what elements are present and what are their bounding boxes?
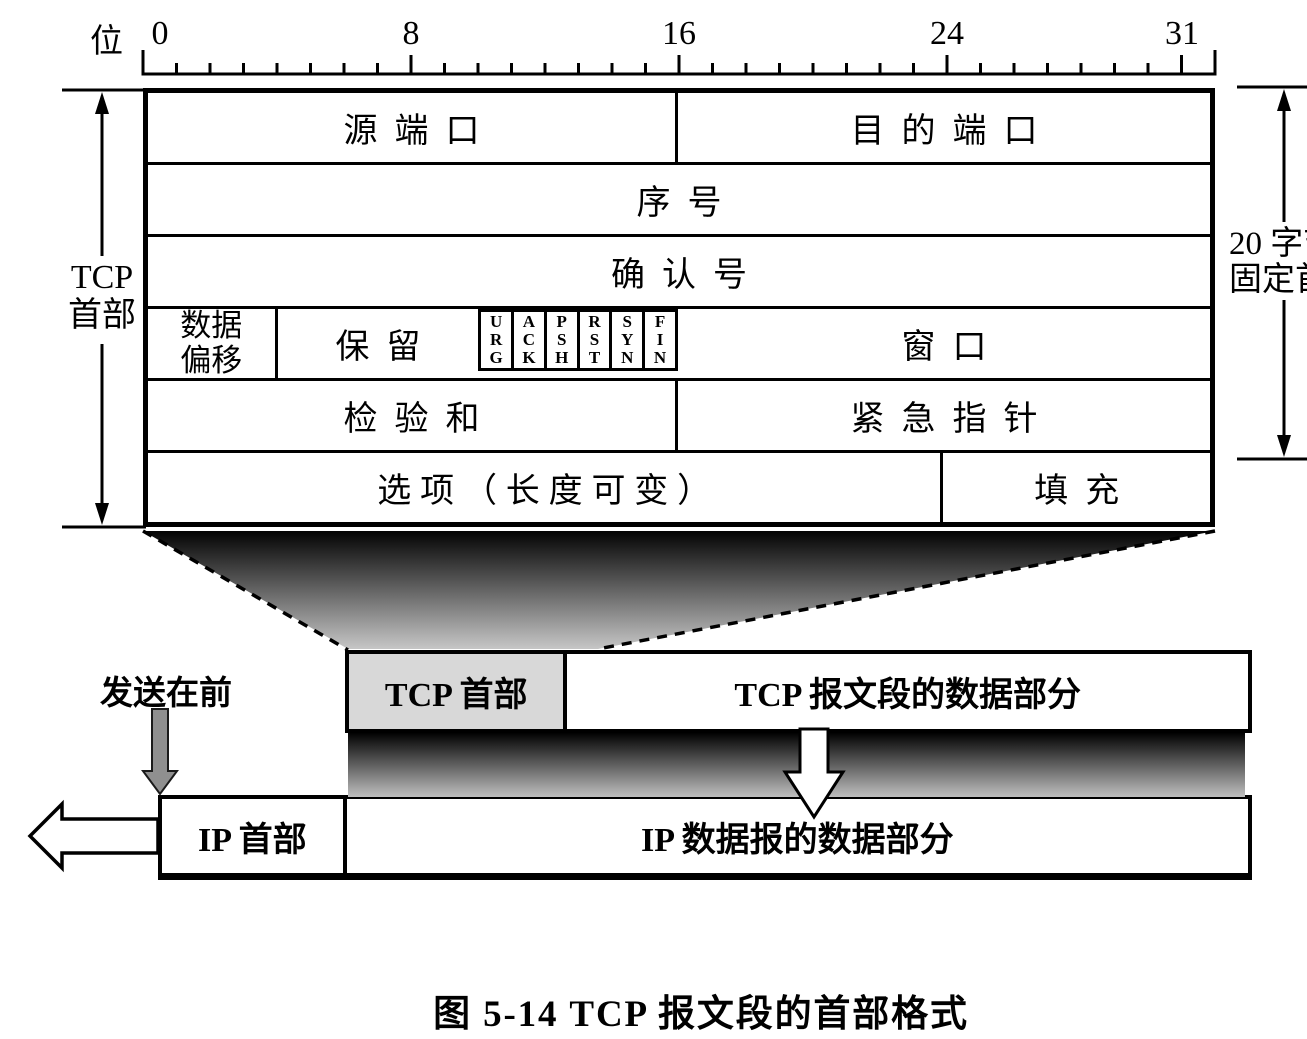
- checksum-cell: 检验和: [148, 381, 678, 450]
- dest-port-cell: 目的端口: [678, 93, 1210, 162]
- options-cell: 选项（长度可变）: [148, 453, 943, 522]
- tcp-segment-box: TCP 首部 TCP 报文段的数据部分: [345, 650, 1252, 733]
- reserved-cell: 保留: [278, 309, 479, 378]
- zoom-out-shadow: [143, 531, 1215, 650]
- tcp-segment-header-cell: TCP 首部: [349, 654, 567, 729]
- ruler-tick-label-31: 31: [1165, 15, 1199, 53]
- table-row-flags: 数据 偏移 保留 U R G A C K P S H R S T S Y N F…: [148, 309, 1210, 381]
- flag-rst-cell: R S T: [577, 309, 613, 371]
- flag-fin-cell: F I N: [642, 309, 678, 371]
- ruler-tick-label-8: 8: [403, 15, 420, 53]
- tcp-segment-data-cell: TCP 报文段的数据部分: [567, 654, 1248, 729]
- data-offset-cell: 数据 偏移: [148, 309, 278, 378]
- bit-ruler: [143, 50, 1215, 76]
- flag-ack-cell: A C K: [511, 309, 547, 371]
- ruler-tick-label-24: 24: [930, 15, 964, 53]
- bit-axis-label: 位: [90, 14, 123, 62]
- window-cell: 窗口: [678, 309, 1210, 378]
- table-row-options: 选项（长度可变） 填充: [148, 453, 1210, 522]
- table-row-ack: 确认号: [148, 237, 1210, 309]
- flag-psh-cell: P S H: [544, 309, 580, 371]
- send-first-arrow-icon: [143, 709, 177, 794]
- tcp-header-bracket-label: TCP 首部: [68, 259, 136, 335]
- ack-number-cell: 确认号: [148, 237, 1210, 306]
- sequence-number-cell: 序号: [148, 165, 1210, 234]
- fixed-header-bracket-label: 20 字节 固定首部: [1229, 226, 1307, 299]
- send-first-label: 发送在前: [100, 666, 232, 714]
- tcp-header-table: 源端口 目的端口 序号 确认号 数据 偏移 保留 U R G A C K P S…: [143, 88, 1215, 527]
- flag-bits-group: U R G A C K P S H R S T S Y N F I N: [478, 309, 678, 378]
- textbook-figure-page: { "colors": { "ink": "#000000", "backgro…: [0, 0, 1307, 1039]
- flag-urg-cell: U R G: [478, 309, 514, 371]
- flag-syn-cell: S Y N: [609, 309, 645, 371]
- ip-datagram-box: IP 首部 IP 数据报的数据部分: [158, 795, 1252, 880]
- ruler-tick-label-0: 0: [152, 15, 169, 53]
- urgent-pointer-cell: 紧急指针: [678, 381, 1210, 450]
- transmit-left-arrow-icon: [30, 804, 158, 868]
- ip-data-cell: IP 数据报的数据部分: [347, 799, 1248, 873]
- ruler-tick-label-16: 16: [662, 15, 696, 53]
- figure-caption: 图 5-14 TCP 报文段的首部格式: [0, 983, 1307, 1037]
- padding-cell: 填充: [943, 453, 1210, 522]
- ip-header-cell: IP 首部: [162, 799, 347, 873]
- table-row-seq: 序号: [148, 165, 1210, 237]
- table-row-checksum: 检验和 紧急指针: [148, 381, 1210, 453]
- source-port-cell: 源端口: [148, 93, 678, 162]
- table-row-ports: 源端口 目的端口: [148, 93, 1210, 165]
- drop-shadow-band: [348, 733, 1245, 797]
